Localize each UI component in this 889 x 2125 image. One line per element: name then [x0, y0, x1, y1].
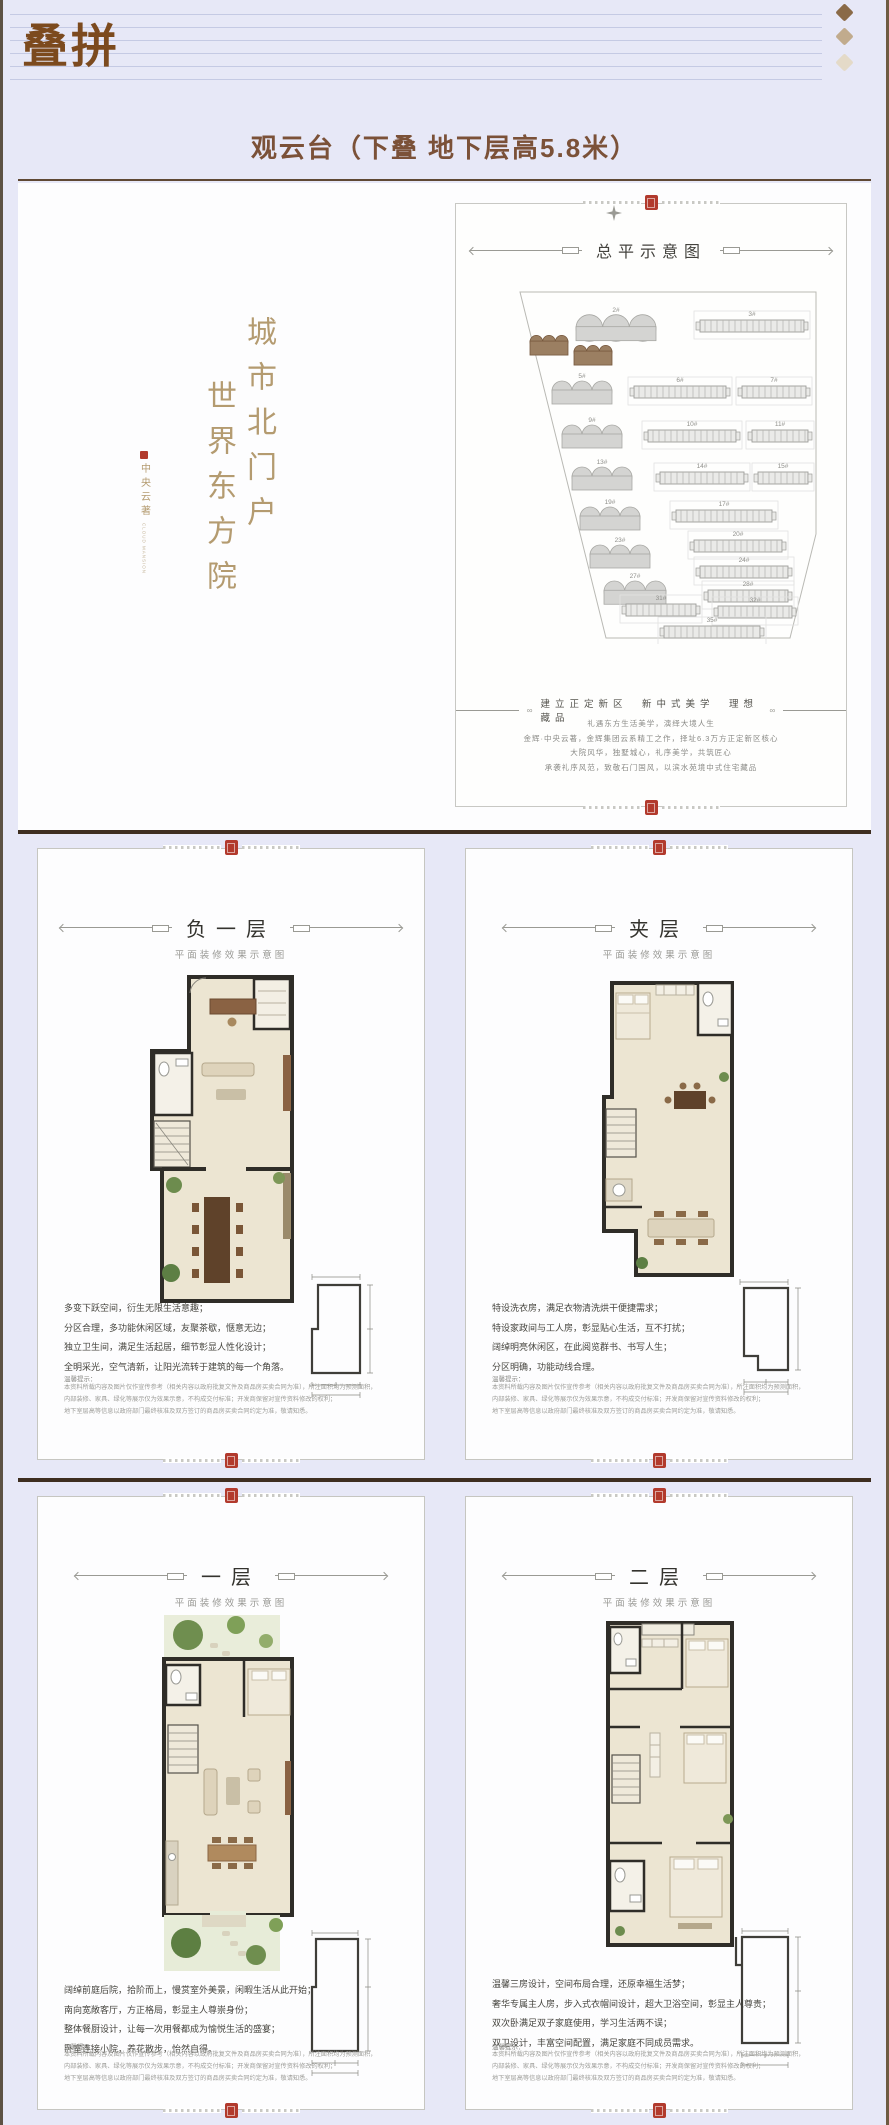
- svg-text:10#: 10#: [687, 421, 698, 428]
- ruled-line: [10, 40, 822, 41]
- svg-text:20#: 20#: [733, 531, 744, 538]
- svg-text:24#: 24#: [739, 557, 750, 564]
- disclaimer: 本资料所载内容及图片仅作宣传参考（相关内容以政府批复文件及商品房买卖合同为准），…: [64, 2049, 396, 2085]
- intro-section: 城市北门户 世界东方院 中央云著 CLOUD MANSION 总平示意图: [18, 183, 871, 830]
- floor-subtitle: 平面装修效果示意图: [466, 947, 852, 961]
- diamond-ornament-icon: [835, 53, 853, 71]
- intro-paragraphs: 礼遇东方生活美学，演绎大境人生金辉·中央云著，金辉集团云系精工之作，择址6.3万…: [456, 718, 846, 776]
- panel-bottom-ornament: [456, 800, 846, 815]
- intro-vertical-text-left: 世界东方院: [196, 380, 240, 605]
- floor-subtitle: 平面装修效果示意图: [466, 1595, 852, 1609]
- svg-text:14#: 14#: [697, 463, 708, 470]
- intro-paragraph: 金辉·中央云著，金辉集团云系精工之作，择址6.3万方正定新区核心: [456, 733, 846, 744]
- red-seal-icon: [225, 1453, 238, 1468]
- red-seal-icon: [225, 2103, 238, 2118]
- intro-paragraph: 承袭礼序风范，致敬石门国风，以滨水苑境中式住宅藏品: [456, 762, 846, 773]
- siteplan-drawing: 2#3#5#6#7#9#10#11#13#14#15#19#17#23#20#2…: [474, 282, 828, 644]
- red-seal-icon: [645, 800, 658, 815]
- panel-top-ornament: [456, 195, 846, 210]
- svg-text:28#: 28#: [743, 581, 754, 588]
- disclaimer-line: 本资料所载内容及图片仅作宣传参考（相关内容以政府批复文件及商品房买卖合同为准），…: [64, 2049, 396, 2058]
- feature-line: 整体餐厨设计，让每一次用餐都成为愉悦生活的盛宴；: [64, 2022, 316, 2035]
- floor-title-row: 二层: [466, 1561, 852, 1590]
- svg-text:17#: 17#: [719, 501, 730, 508]
- floor-subtitle: 平面装修效果示意图: [38, 947, 424, 961]
- floor-plan-first: [144, 1613, 294, 1973]
- svg-text:2#: 2#: [612, 307, 620, 314]
- feature-line: 特设家政间与工人房，彰显贴心生活，互不打扰；: [492, 1321, 690, 1334]
- brochure-page: 叠拼 观云台（下叠 地下层高5.8米） 城市北门户 世界东方院 中央云著 CLO…: [0, 0, 889, 2125]
- svg-text:35#: 35#: [707, 617, 718, 624]
- feature-line: 阔绰明亮休闲区，在此阅览群书、书写人生；: [492, 1340, 690, 1353]
- floor-title: 二层: [629, 1561, 689, 1590]
- disclaimer: 本资料所载内容及图片仅作宣传参考（相关内容以政府批复文件及商品房买卖合同为准），…: [492, 2049, 824, 2085]
- brand-emblem-caption: CLOUD MANSION: [142, 523, 147, 574]
- infinity-ornament-icon: ∞: [770, 706, 776, 715]
- brand-seal-icon: [140, 451, 148, 459]
- disclaimer-line: 内部装修、家具、绿化等展示仅为效果示意，不构成交付标准；开发商保留对宣传资料修改…: [492, 2061, 824, 2070]
- feature-line: 独立卫生间，满足生活起居，细节彰显人性化设计；: [64, 1340, 289, 1353]
- intro-paragraph: 礼遇东方生活美学，演绎大境人生: [456, 718, 846, 729]
- disclaimer-line: 本资料所载内容及图片仅作宣传参考（相关内容以政府批复文件及商品房买卖合同为准），…: [64, 1382, 396, 1391]
- disclaimer-line: 地下室层高等信息以政府部门最终核准及双方签订的商品房买卖合同约定为准，敬请知悉。: [492, 1406, 824, 1415]
- feature-line: 全明采光，空气清新，让阳光流转于建筑的每一个角落。: [64, 1360, 289, 1373]
- floor-plan-mezzanine: [584, 979, 734, 1279]
- red-seal-icon: [653, 840, 666, 855]
- svg-text:6#: 6#: [676, 377, 684, 384]
- diamond-ornament-icon: [835, 3, 853, 21]
- ruled-line: [10, 53, 822, 54]
- disclaimer: 本资料所载内容及图片仅作宣传参考（相关内容以政府批复文件及商品房买卖合同为准），…: [64, 1382, 396, 1418]
- ruled-line: [10, 79, 822, 80]
- svg-text:19#: 19#: [605, 499, 616, 506]
- red-seal-icon: [653, 1488, 666, 1503]
- svg-text:9#: 9#: [588, 417, 596, 424]
- feature-line: 特设洗衣房，满足衣物清洗烘干便捷需求；: [492, 1301, 690, 1314]
- left-edge-line: [0, 0, 3, 2125]
- floor-card-first: 一层 平面装修效果示意图: [37, 1496, 425, 2110]
- ruled-line: [10, 14, 822, 15]
- svg-text:5#: 5#: [578, 373, 586, 380]
- disclaimer-line: 地下室层高等信息以政府部门最终核准及双方签订的商品房买卖合同约定为准，敬请知悉。: [64, 1406, 396, 1415]
- infinity-ornament-icon: ∞: [527, 706, 533, 715]
- floor-title-row: 一层: [38, 1561, 424, 1590]
- brand-emblem-text: 中央云著: [137, 463, 152, 519]
- ruled-line: [10, 66, 822, 67]
- svg-text:11#: 11#: [775, 421, 786, 428]
- feature-line: 分区合理，多功能休闲区域，友聚茶歇，惬意无边；: [64, 1321, 289, 1334]
- svg-text:13#: 13#: [597, 459, 608, 466]
- title-ornament-right: [720, 246, 832, 255]
- floor-title-row: 负一层: [38, 913, 424, 942]
- svg-text:27#: 27#: [630, 573, 641, 580]
- section-divider: [18, 830, 871, 834]
- feature-list: 特设洗衣房，满足衣物清洗烘干便捷需求；特设家政间与工人房，彰显贴心生活，互不打扰…: [492, 1301, 690, 1379]
- section-heading: 叠拼: [22, 10, 120, 76]
- feature-line: 多变下跃空间，衍生无限生活意趣；: [64, 1301, 289, 1314]
- red-seal-icon: [225, 840, 238, 855]
- floor-title: 一层: [201, 1561, 261, 1590]
- title-rule: [18, 179, 871, 181]
- disclaimer: 本资料所载内容及图片仅作宣传参考（相关内容以政府批复文件及商品房买卖合同为准），…: [492, 1382, 824, 1418]
- red-seal-icon: [653, 2103, 666, 2118]
- disclaimer-line: 内部装修、家具、绿化等展示仅为效果示意，不构成交付标准；开发商保留对宣传资料修改…: [64, 1394, 396, 1403]
- floor-card-mezzanine: 夹层 平面装修效果示意图 特设洗衣房: [465, 848, 853, 1460]
- title-ornament-left: [470, 246, 582, 255]
- red-seal-icon: [225, 1488, 238, 1503]
- intro-vertical-text-right: 城市北门户: [236, 316, 280, 541]
- floor-plan-second: [584, 1619, 734, 1949]
- svg-text:23#: 23#: [615, 537, 626, 544]
- red-seal-icon: [645, 195, 658, 210]
- disclaimer-line: 本资料所载内容及图片仅作宣传参考（相关内容以政府批复文件及商品房买卖合同为准），…: [492, 1382, 824, 1391]
- disclaimer-line: 内部装修、家具、绿化等展示仅为效果示意，不构成交付标准；开发商保留对宣传资料修改…: [492, 1394, 824, 1403]
- floor-title: 夹层: [629, 913, 689, 942]
- svg-text:31#: 31#: [656, 595, 667, 602]
- siteplan-title-row: 总平示意图: [456, 238, 846, 262]
- page-title: 观云台（下叠 地下层高5.8米）: [0, 128, 889, 165]
- svg-text:7#: 7#: [770, 377, 778, 384]
- diamond-ornament-icon: [835, 27, 853, 45]
- floor-plan-basement: [144, 973, 294, 1303]
- disclaimer-line: 地下室层高等信息以政府部门最终核准及双方签订的商品房买卖合同约定为准，敬请知悉。: [64, 2073, 396, 2082]
- brand-emblem: 中央云著 CLOUD MANSION: [122, 451, 166, 574]
- svg-text:3#: 3#: [748, 311, 756, 318]
- svg-text:15#: 15#: [778, 463, 789, 470]
- siteplan-panel: 总平示意图 2#3#5#6#7#9#10#11#13#14#15#19#17#2…: [455, 203, 847, 807]
- floor-title-row: 夹层: [466, 913, 852, 942]
- svg-text:32#: 32#: [750, 597, 761, 604]
- feature-line: 分区明确，功能动线合理。: [492, 1360, 690, 1373]
- feature-line: 阔绰前庭后院，拾阶而上，慢赏室外美景，闲暇生活从此开始；: [64, 1983, 316, 1996]
- disclaimer-line: 内部装修、家具、绿化等展示仅为效果示意，不构成交付标准；开发商保留对宣传资料修改…: [64, 2061, 396, 2070]
- feature-list: 多变下跃空间，衍生无限生活意趣；分区合理，多功能休闲区域，友聚茶歇，惬意无边；独…: [64, 1301, 289, 1379]
- siteplan-title: 总平示意图: [596, 238, 706, 262]
- intro-paragraph: 大院风华，独墅城心，礼序美学，共筑匠心: [456, 747, 846, 758]
- disclaimer-line: 本资料所载内容及图片仅作宣传参考（相关内容以政府批复文件及商品房买卖合同为准），…: [492, 2049, 824, 2058]
- ruled-line: [10, 27, 822, 28]
- red-seal-icon: [653, 1453, 666, 1468]
- section-divider: [18, 1478, 871, 1482]
- floor-title: 负一层: [186, 913, 276, 942]
- feature-line: 南向宽敞客厅，方正格局，彰显主人尊崇身份；: [64, 2003, 316, 2016]
- floor-card-second: 二层 平面装修效果示意图: [465, 1496, 853, 2110]
- floor-card-basement: 负一层 平面装修效果示意图: [37, 848, 425, 1460]
- floor-subtitle: 平面装修效果示意图: [38, 1595, 424, 1609]
- disclaimer-line: 地下室层高等信息以政府部门最终核准及双方签订的商品房买卖合同约定为准，敬请知悉。: [492, 2073, 824, 2082]
